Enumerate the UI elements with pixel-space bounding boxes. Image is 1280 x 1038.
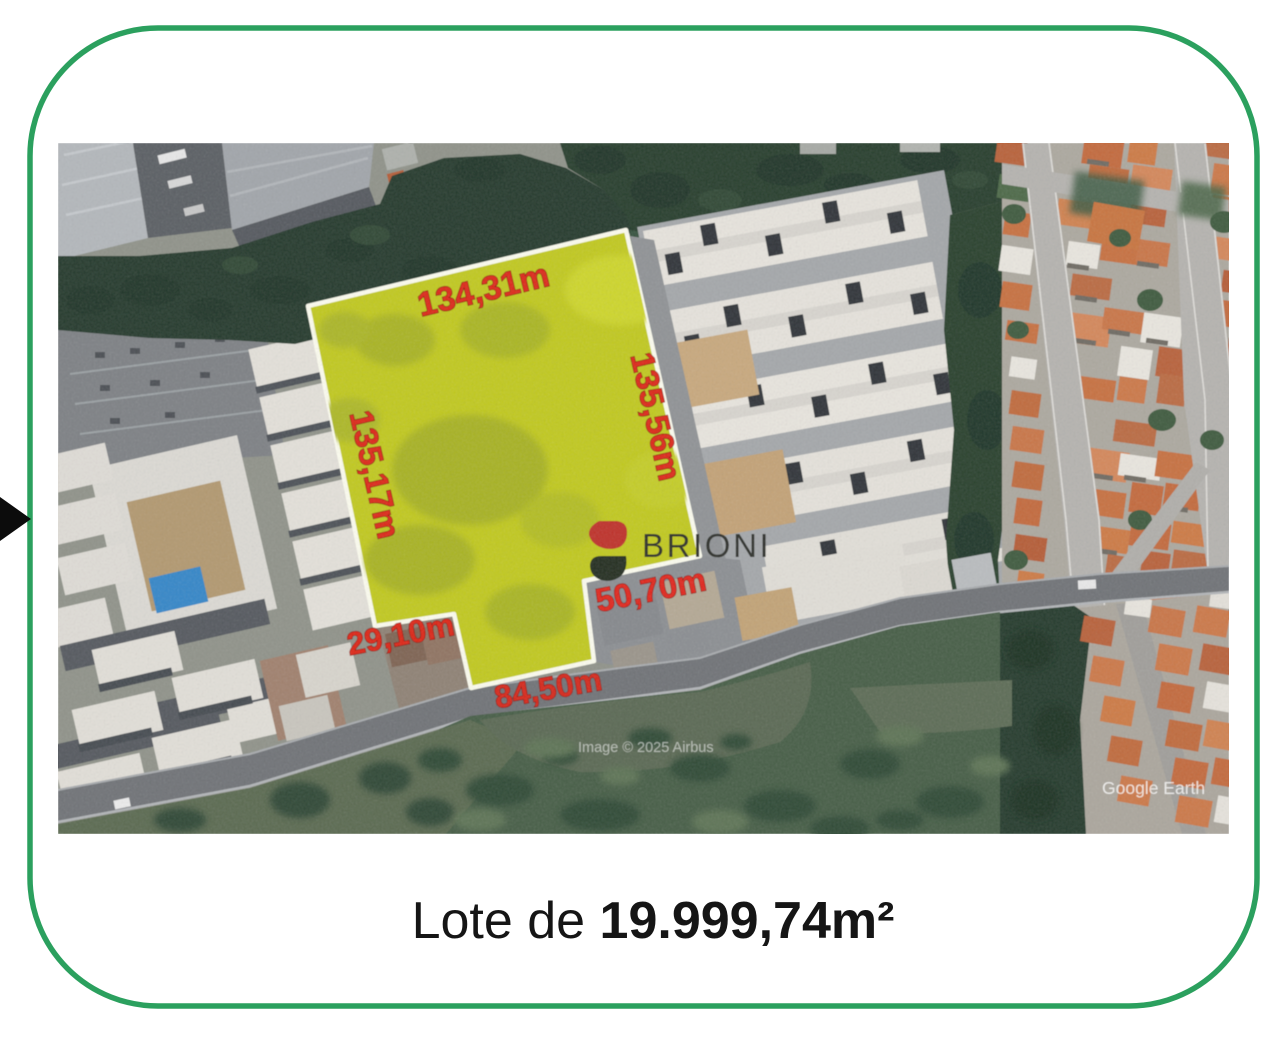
svg-text:Lote de 19.999,74m²: Lote de 19.999,74m² [412,892,895,950]
